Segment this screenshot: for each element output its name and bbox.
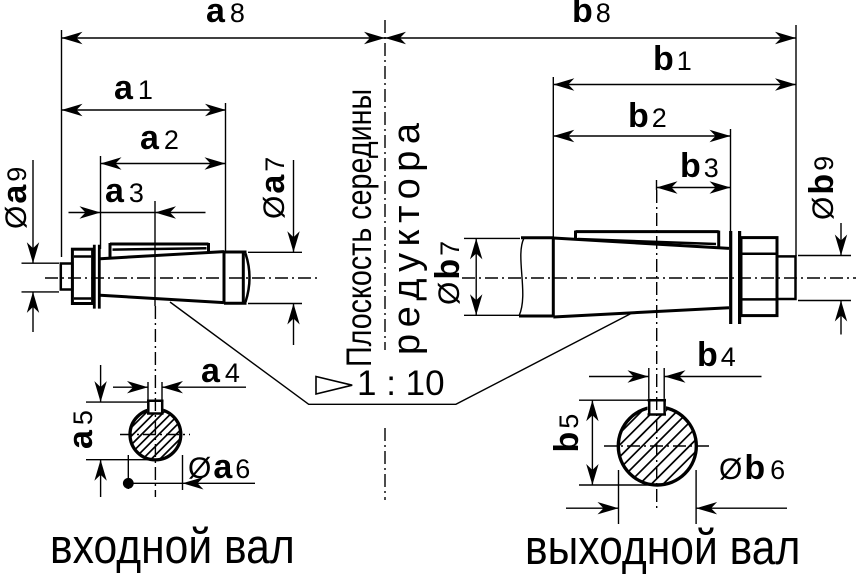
svg-text:выходной вал: выходной вал <box>525 519 800 574</box>
svg-text:b2: b2 <box>628 97 667 135</box>
svg-text:1 : 10: 1 : 10 <box>357 364 445 403</box>
svg-text:b5: b5 <box>548 414 586 453</box>
svg-text:b8: b8 <box>572 0 611 30</box>
svg-text:Плоскость середины: Плоскость середины <box>339 89 378 367</box>
svg-text:Øa6: Øa6 <box>188 448 250 486</box>
svg-text:входной вал: входной вал <box>50 518 295 573</box>
svg-text:Øb6: Øb6 <box>719 449 785 487</box>
svg-text:b1: b1 <box>653 40 692 78</box>
svg-text:Øb7: Øb7 <box>429 241 467 305</box>
svg-text:Øa9: Øa9 <box>0 167 34 229</box>
svg-text:b3: b3 <box>680 147 719 185</box>
svg-text:редуктора: редуктора <box>386 116 428 355</box>
svg-text:b4: b4 <box>697 336 736 374</box>
svg-text:Øa7: Øa7 <box>254 157 292 219</box>
svg-text:Øb9: Øb9 <box>803 156 841 220</box>
